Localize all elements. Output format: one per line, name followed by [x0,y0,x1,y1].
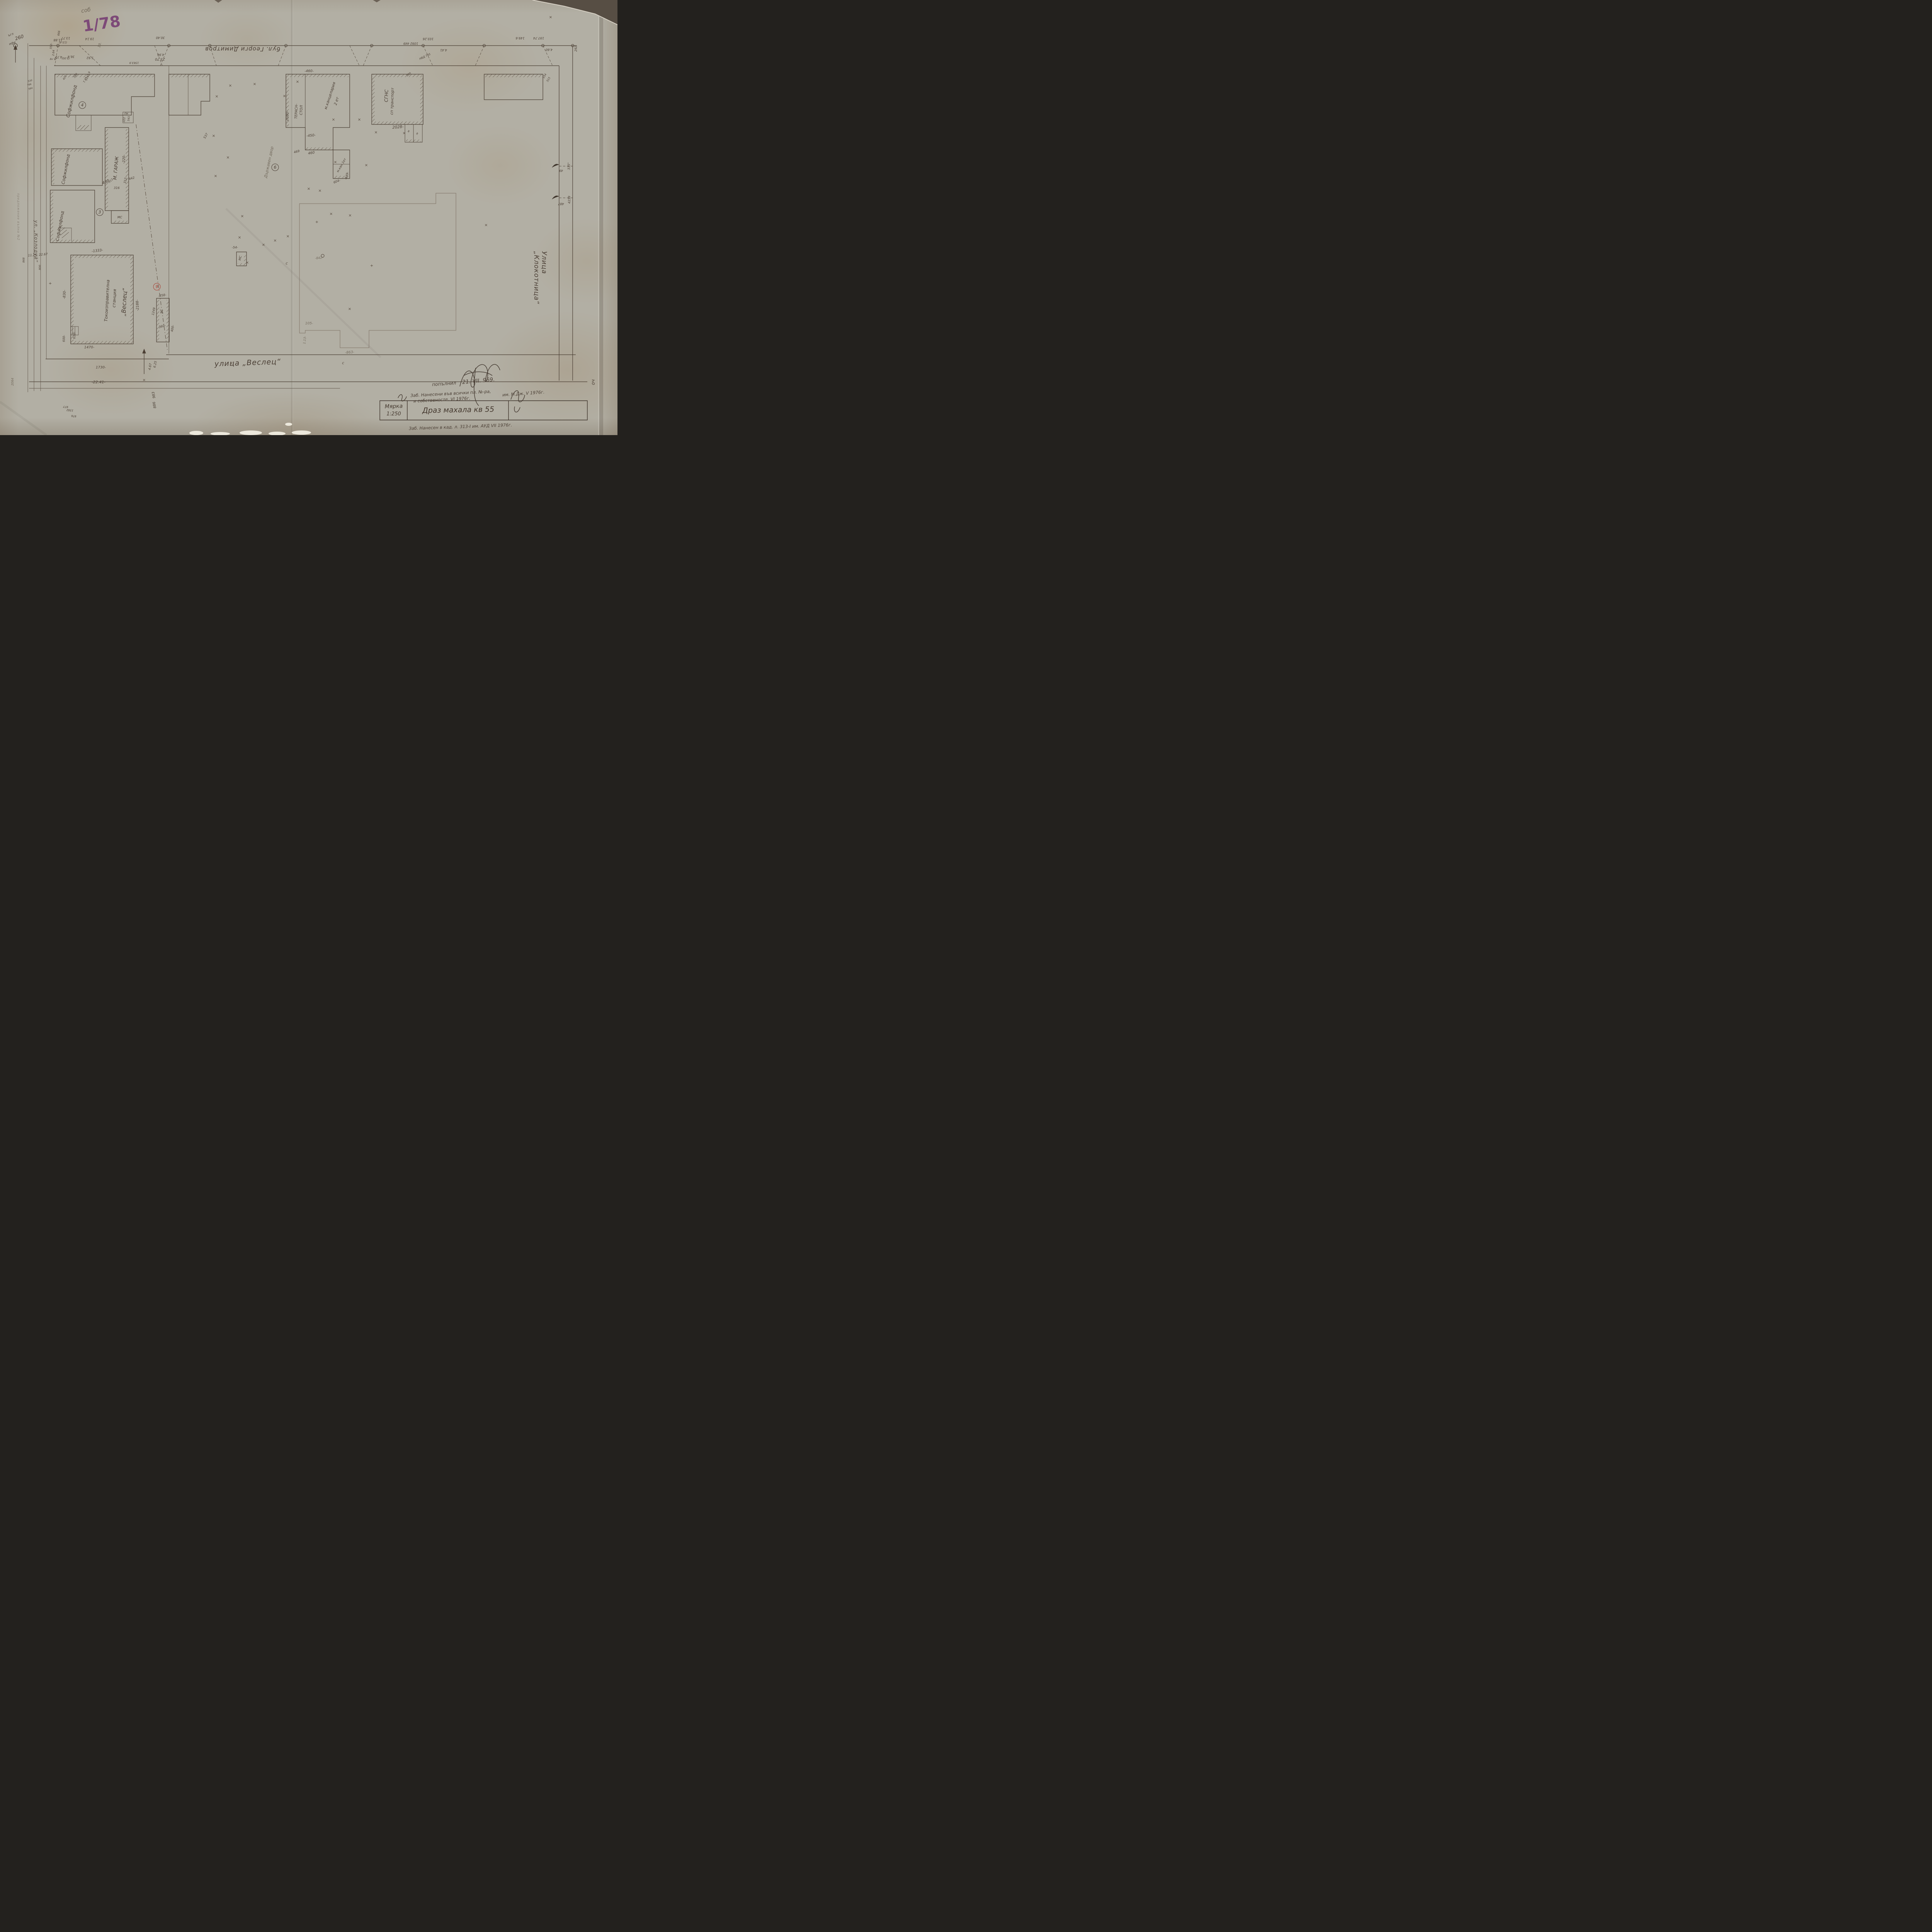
torn-patch [189,431,203,435]
survey-x-mark: × [307,187,310,191]
street-side-note: предложение вълна №2 [17,193,20,240]
torn-patch [211,432,230,435]
survey-x-mark: × [241,214,244,219]
survey-x-mark: × [238,236,241,240]
circled-parcel-number: 9 [153,283,161,291]
survey-x-mark: × [262,243,265,247]
survey-x-mark: × [485,223,488,228]
survey-x-mark: × [296,80,299,84]
survey-x-mark: × [403,131,406,136]
survey-x-mark: × [229,84,232,88]
survey-x-mark: × [374,131,378,135]
survey-x-mark: × [274,239,277,243]
title-block-scale-value: 1:250 [382,411,406,417]
survey-plus-mark: + [315,220,318,224]
survey-x-mark: × [253,82,256,87]
scanned-cadastral-plan-sheet: 1/78 соб 19. бул. Георги Димитров улица … [0,0,617,435]
survey-c-mark: с [342,361,344,366]
survey-x-mark: × [143,378,146,383]
survey-x-mark: × [330,212,333,216]
plan-linework [0,0,617,435]
title-block-scale-label: Мярка [382,403,406,410]
circled-parcel-number: 6 [272,164,279,171]
circled-parcel-number: 3 [96,209,104,216]
street-label-top-boulevard: бул. Георги Димитров [205,46,280,53]
street-label-kozloduy: ул. „Козлодуй“ [33,220,39,262]
survey-x-mark: × [349,214,352,218]
survey-x-mark: × [214,174,217,179]
survey-x-mark: × [212,134,215,138]
note-corner-mark: оч [590,379,596,385]
survey-plus-mark: + [370,264,373,268]
survey-x-mark: × [226,156,230,160]
survey-x-mark: × [286,235,289,239]
torn-patch [292,430,311,435]
survey-x-mark: × [332,118,335,122]
survey-x-mark: × [215,95,218,99]
survey-x-mark: × [246,261,249,265]
torn-patch [285,423,292,426]
survey-x-mark: × [358,118,361,122]
survey-x-mark: × [283,94,286,99]
survey-c-mark: с [286,262,288,266]
survey-x-mark: × [334,160,337,165]
circled-parcel-number: 4 [79,102,86,109]
survey-plus-mark: + [49,282,52,286]
street-label-klokotnitsa: Улица „Клокотница“ [532,251,548,321]
survey-x-mark: × [318,189,321,193]
survey-x-mark: × [365,163,368,168]
survey-x-mark: × [549,15,552,20]
survey-c-mark: с [231,361,233,366]
torn-patch [269,432,286,435]
title-block-title: Драз махала кв 55 [410,405,507,415]
survey-x-mark: × [348,307,351,311]
torn-patch [240,430,262,435]
